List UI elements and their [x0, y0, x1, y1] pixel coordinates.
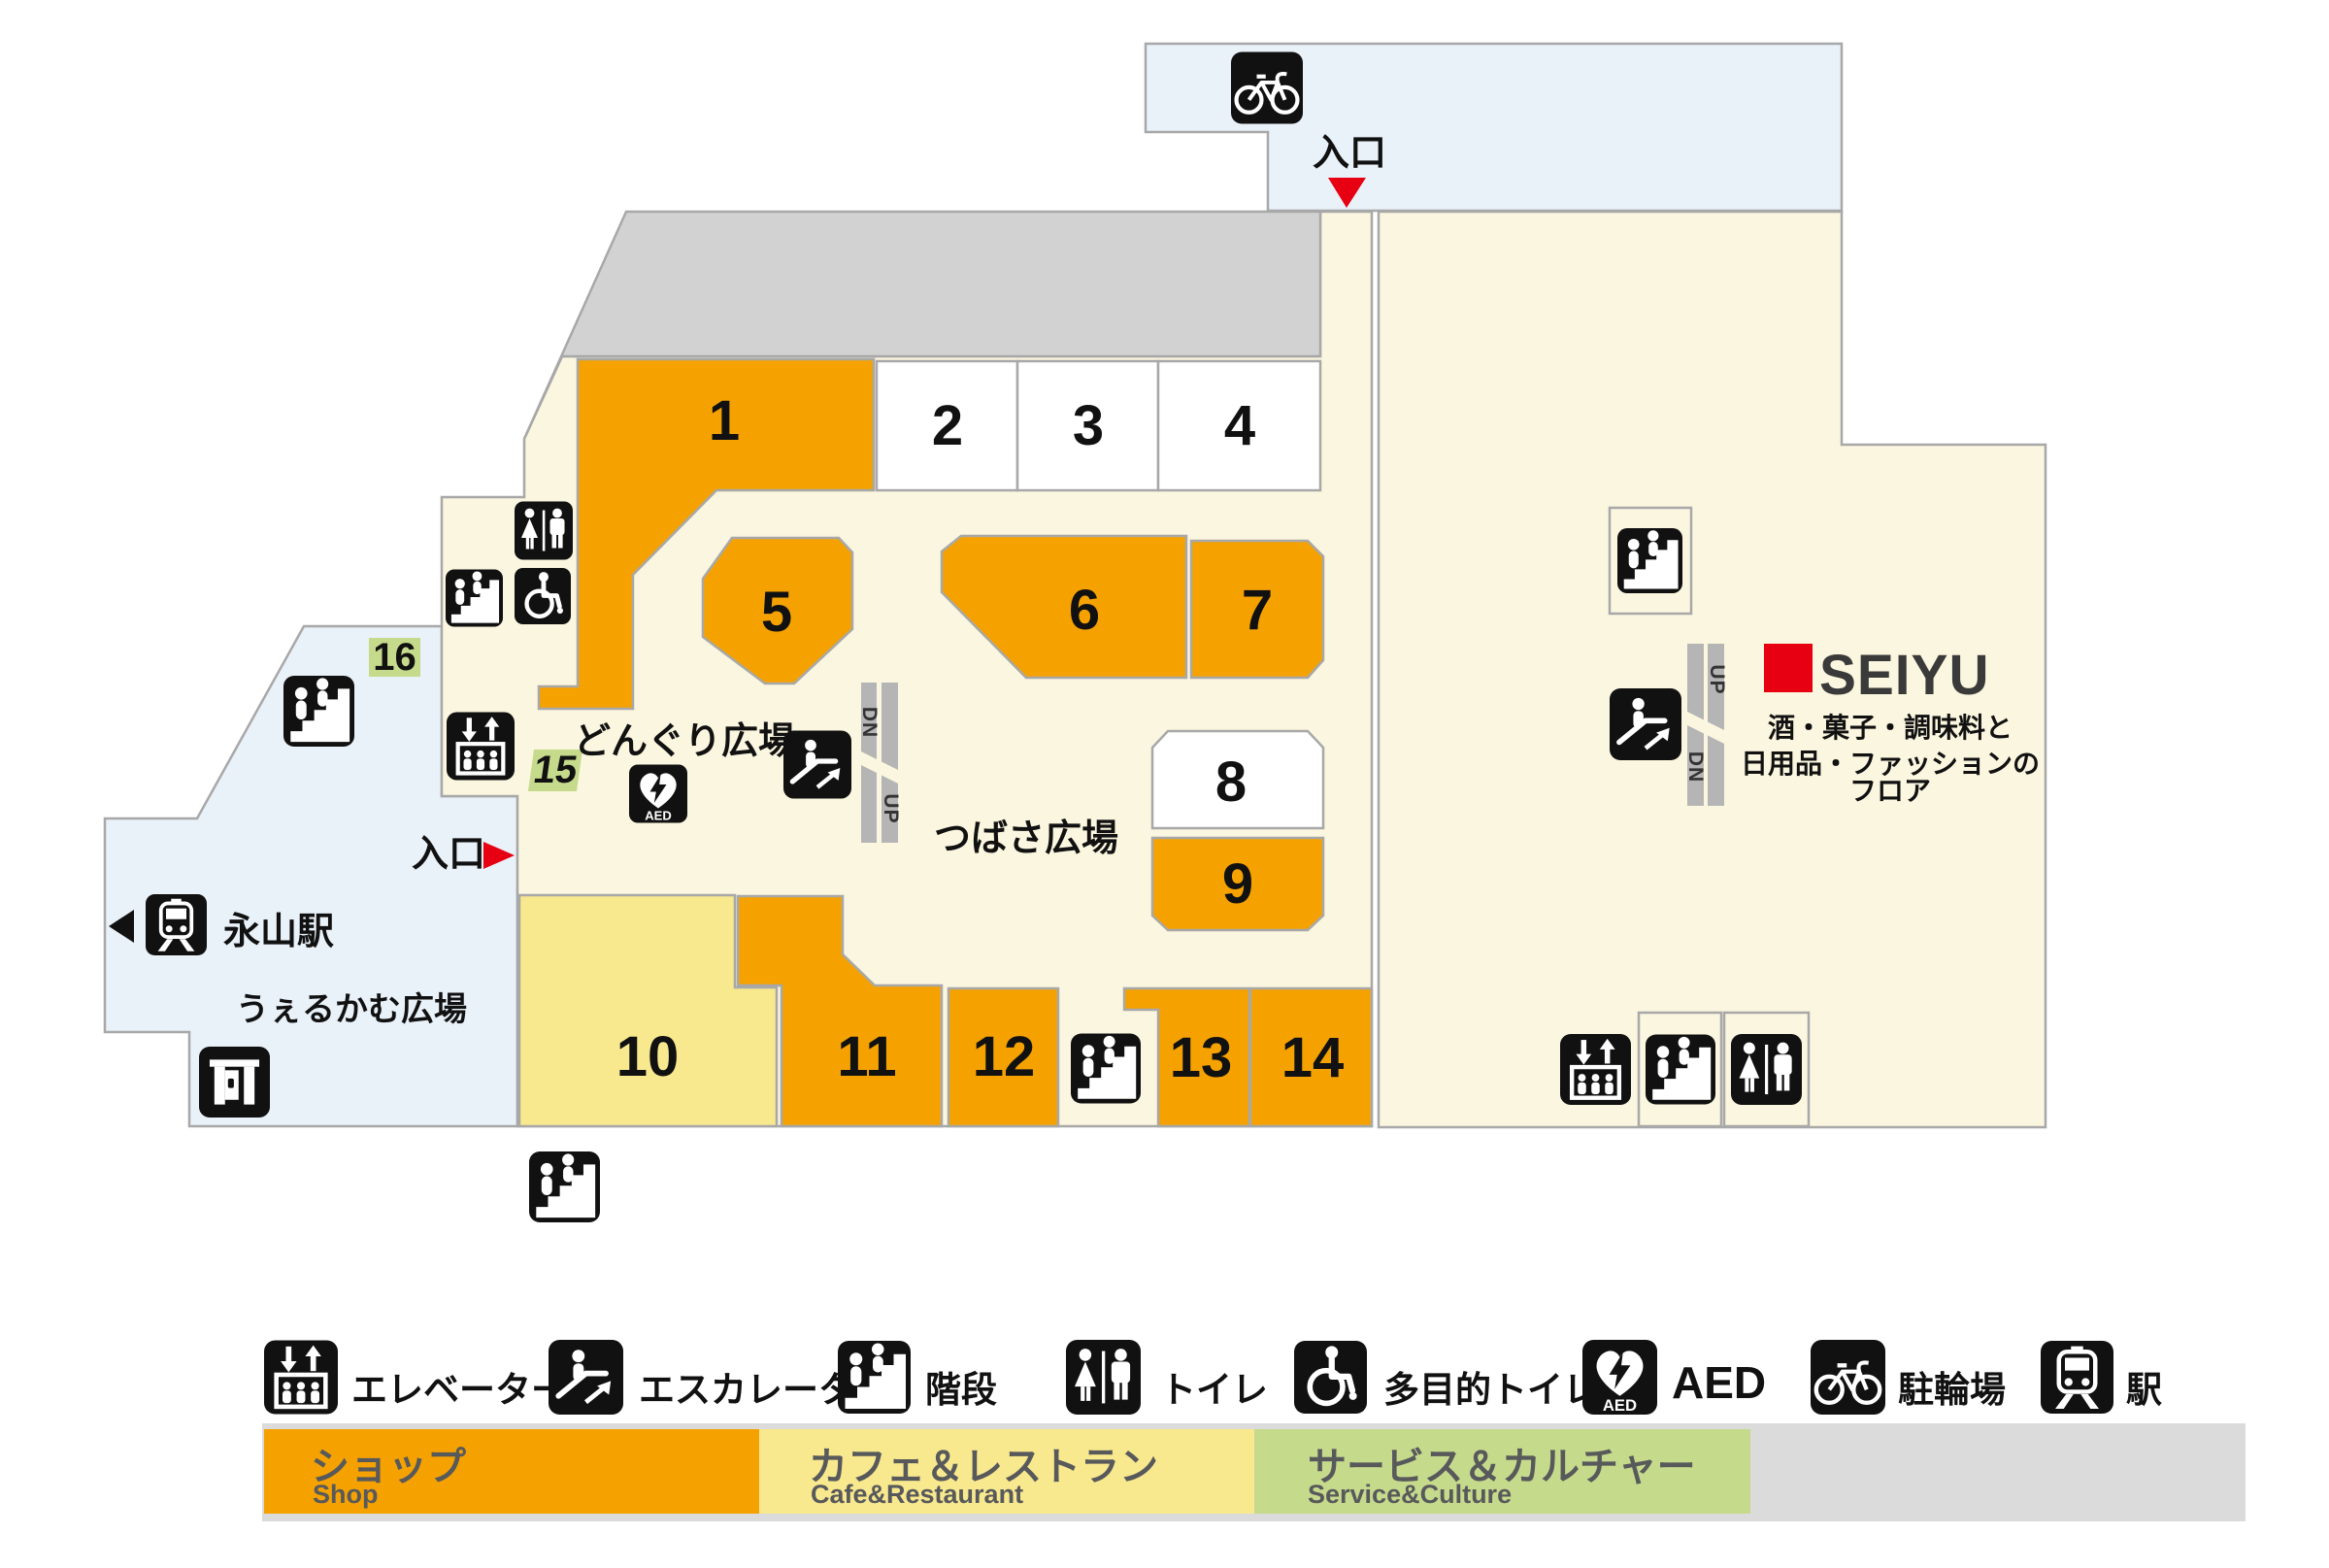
- category-cafe-sub: Cafe&Restaurant: [811, 1480, 1023, 1510]
- legend-station-label: 駅: [2126, 1360, 2162, 1413]
- escalator-dn-label: DN: [1683, 751, 1707, 783]
- stairs-icon: [1617, 522, 1682, 599]
- accessible-toilet-icon: [1294, 1340, 1367, 1415]
- stairs-icon: [529, 1151, 600, 1223]
- legend-bicycle-label: 駐輪場: [1898, 1360, 2006, 1413]
- category-shop-sub: Shop: [313, 1480, 379, 1510]
- toilet-icon: [1066, 1340, 1141, 1415]
- stairs-icon: [446, 568, 503, 628]
- seiyu-logo-square: [1764, 644, 1813, 692]
- legend-toilet-label: トイレ: [1160, 1360, 1268, 1413]
- tsubasa-plaza-label: つばさ広場: [934, 820, 1118, 857]
- floor-map: 1 2 3 4 5 6 7 8 9 10 11 12 13 14 15 16 入…: [0, 0, 2329, 1568]
- unit-9: 9: [1222, 856, 1253, 913]
- unit-16: 16: [369, 638, 420, 677]
- station-label: 永山駅: [223, 914, 334, 951]
- unit-2: 2: [932, 398, 963, 454]
- legend-aed-label: AED: [1672, 1356, 1766, 1409]
- legend-stairs-label: 階段: [925, 1360, 997, 1413]
- escalator-up-label: UP: [1705, 664, 1728, 694]
- bicycle-icon: [1811, 1340, 1885, 1415]
- stairs-icon: [838, 1340, 911, 1415]
- seiyu-logo-text: SEIYU: [1819, 643, 1989, 708]
- category-service-sub: Service&Culture: [1308, 1480, 1512, 1510]
- escalator-icon: [549, 1340, 623, 1415]
- bicycle-parking-icon: [1231, 51, 1303, 124]
- unit-13: 13: [1170, 1030, 1233, 1086]
- unit-10: 10: [616, 1029, 680, 1085]
- escalator-icon: [1610, 686, 1681, 762]
- station-icon: [146, 891, 207, 958]
- accessible-toilet-icon: [515, 567, 571, 625]
- station-icon: [2041, 1340, 2113, 1415]
- aed-icon: [629, 764, 687, 823]
- entrance-door-icon: [199, 1046, 270, 1118]
- elevator-icon: [264, 1340, 338, 1415]
- entrance-label-left: 入口: [412, 836, 485, 873]
- toilet-icon: [1731, 1032, 1802, 1107]
- escalator-up-label: UP: [879, 793, 902, 823]
- elevator-icon: [1560, 1032, 1631, 1107]
- legend-accessible-toilet-label: 多目的トイレ: [1383, 1360, 1599, 1413]
- unit-12: 12: [973, 1029, 1036, 1085]
- unit-7: 7: [1242, 583, 1273, 639]
- stairs-icon: [1071, 1032, 1141, 1105]
- donguri-plaza-label: どんぐり広場: [574, 723, 795, 760]
- stairs-icon: [1646, 1032, 1715, 1107]
- stairs-icon: [283, 673, 354, 750]
- legend-elevator-label: エレベーター: [351, 1360, 567, 1413]
- unit-5: 5: [761, 584, 792, 641]
- seiyu-desc-line3: フロア: [1849, 773, 1931, 809]
- unit-8: 8: [1215, 754, 1247, 811]
- welcome-plaza-label: うぇるかむ広場: [236, 993, 467, 1026]
- escalator-dn-label: DN: [857, 707, 881, 738]
- unit-6: 6: [1069, 583, 1100, 639]
- aed-icon: [1582, 1340, 1657, 1415]
- unit-3: 3: [1073, 398, 1104, 454]
- unit-1: 1: [709, 393, 740, 450]
- unit-14: 14: [1281, 1030, 1345, 1086]
- elevator-icon: [447, 709, 515, 784]
- floor-geometry: [0, 0, 2329, 1568]
- toilet-icon: [515, 501, 573, 560]
- entrance-label-top: 入口: [1313, 135, 1386, 172]
- seiyu-desc-line1: 酒・菓子・調味料と: [1768, 710, 2013, 746]
- unit-11: 11: [837, 1029, 896, 1085]
- unit-4: 4: [1224, 398, 1255, 454]
